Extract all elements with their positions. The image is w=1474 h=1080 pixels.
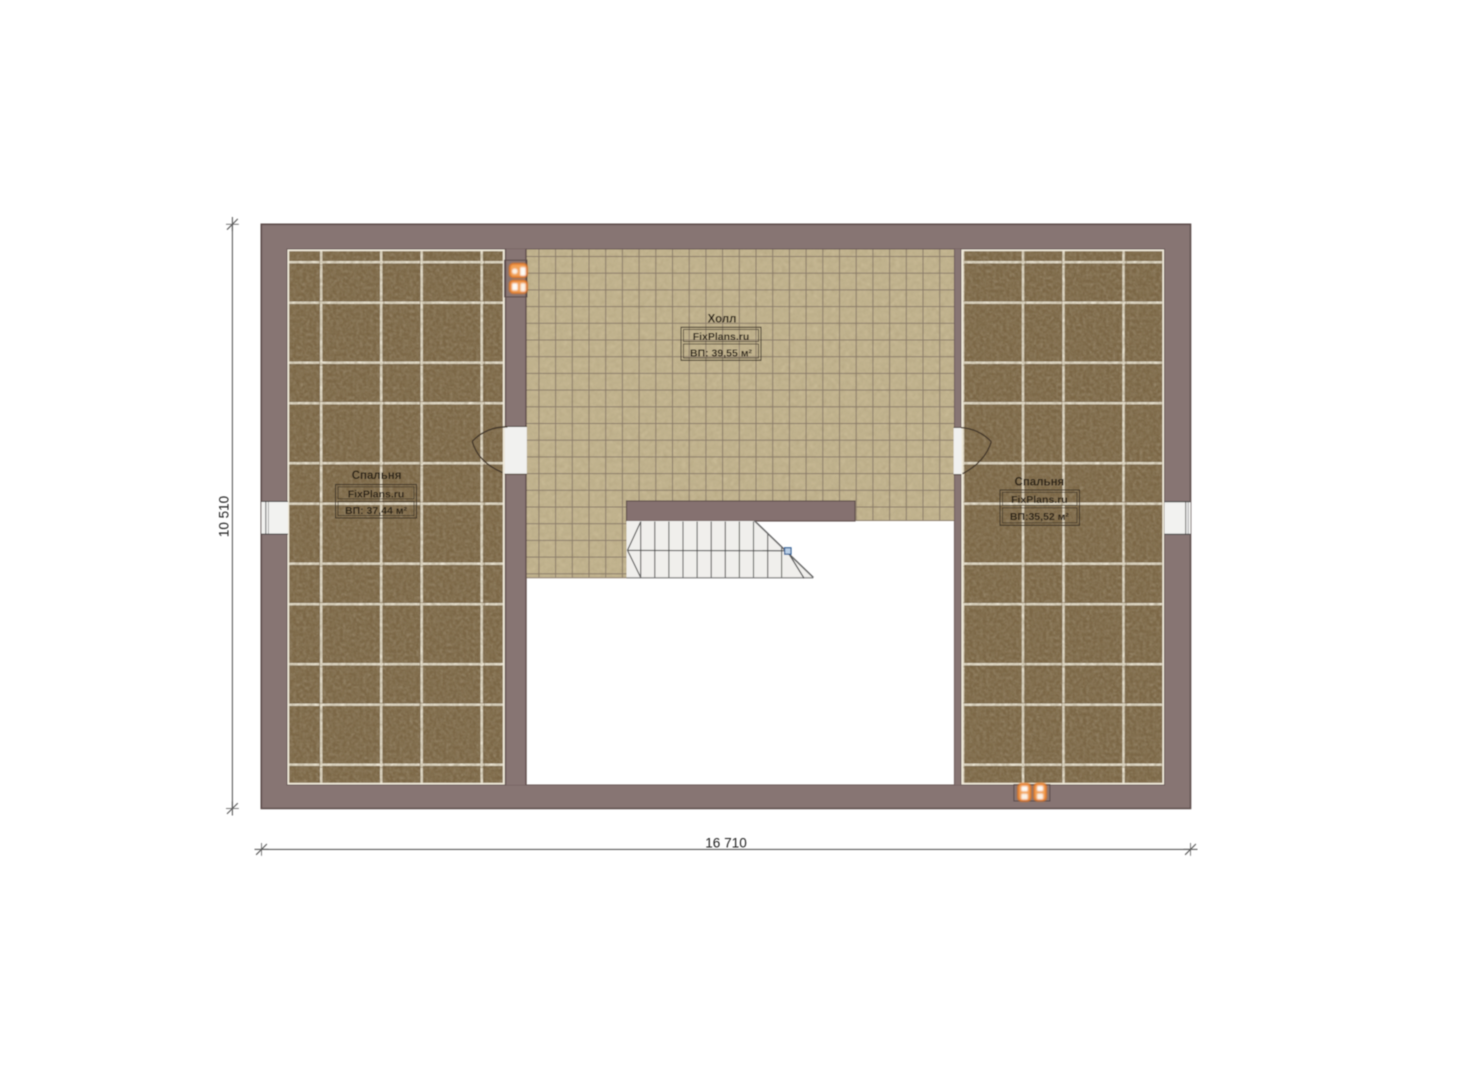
svg-text:Спальня: Спальня: [1015, 476, 1065, 488]
svg-text:Холл: Холл: [708, 313, 737, 325]
svg-text:ВП:35,52 м²: ВП:35,52 м²: [1010, 511, 1070, 523]
svg-text:ВП: 37,44 м²: ВП: 37,44 м²: [345, 505, 408, 517]
svg-text:10 510: 10 510: [217, 496, 232, 537]
svg-text:FixPlans.ru: FixPlans.ru: [693, 331, 750, 343]
svg-text:FixPlans.ru: FixPlans.ru: [348, 488, 405, 500]
svg-text:FixPlans.ru: FixPlans.ru: [1011, 494, 1068, 506]
svg-text:16 710: 16 710: [705, 836, 747, 851]
svg-text:ВП: 39,55 м²: ВП: 39,55 м²: [690, 348, 753, 360]
svg-text:Спальня: Спальня: [352, 470, 402, 482]
